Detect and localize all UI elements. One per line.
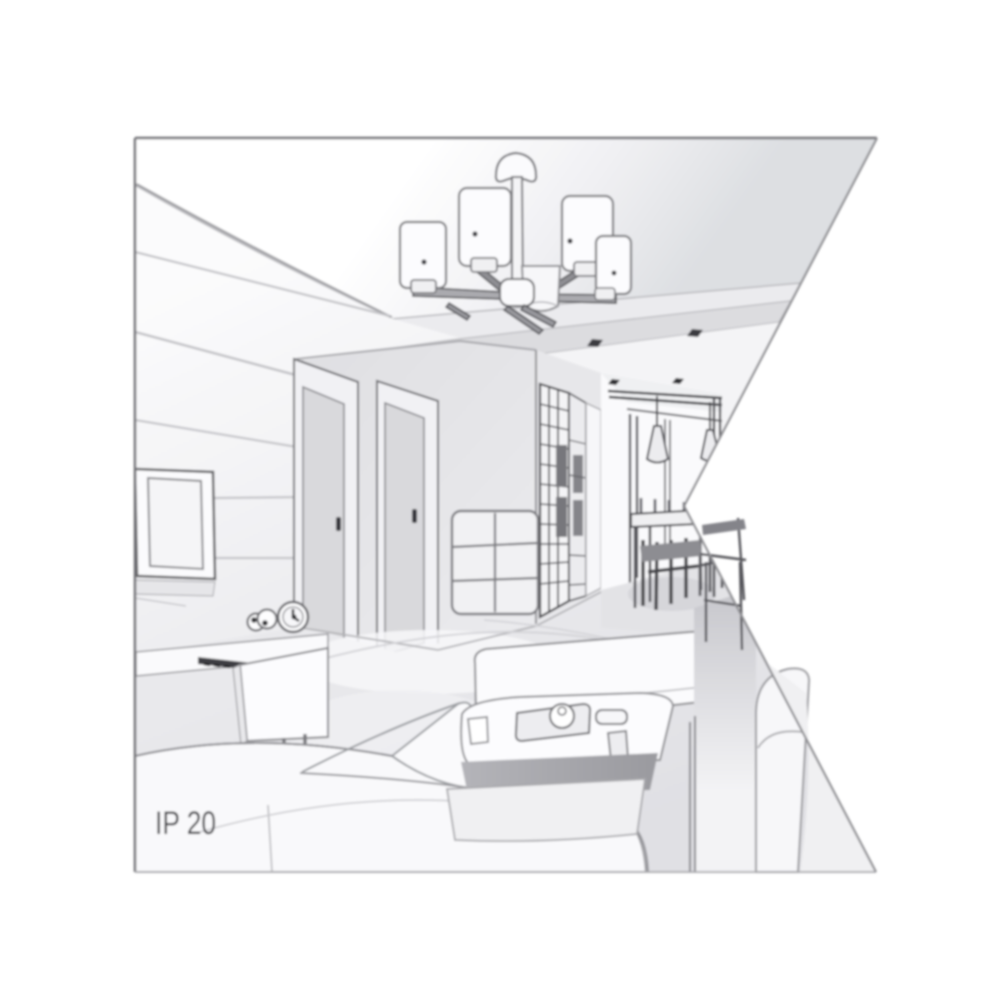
- svg-text:IP 20: IP 20: [155, 805, 216, 841]
